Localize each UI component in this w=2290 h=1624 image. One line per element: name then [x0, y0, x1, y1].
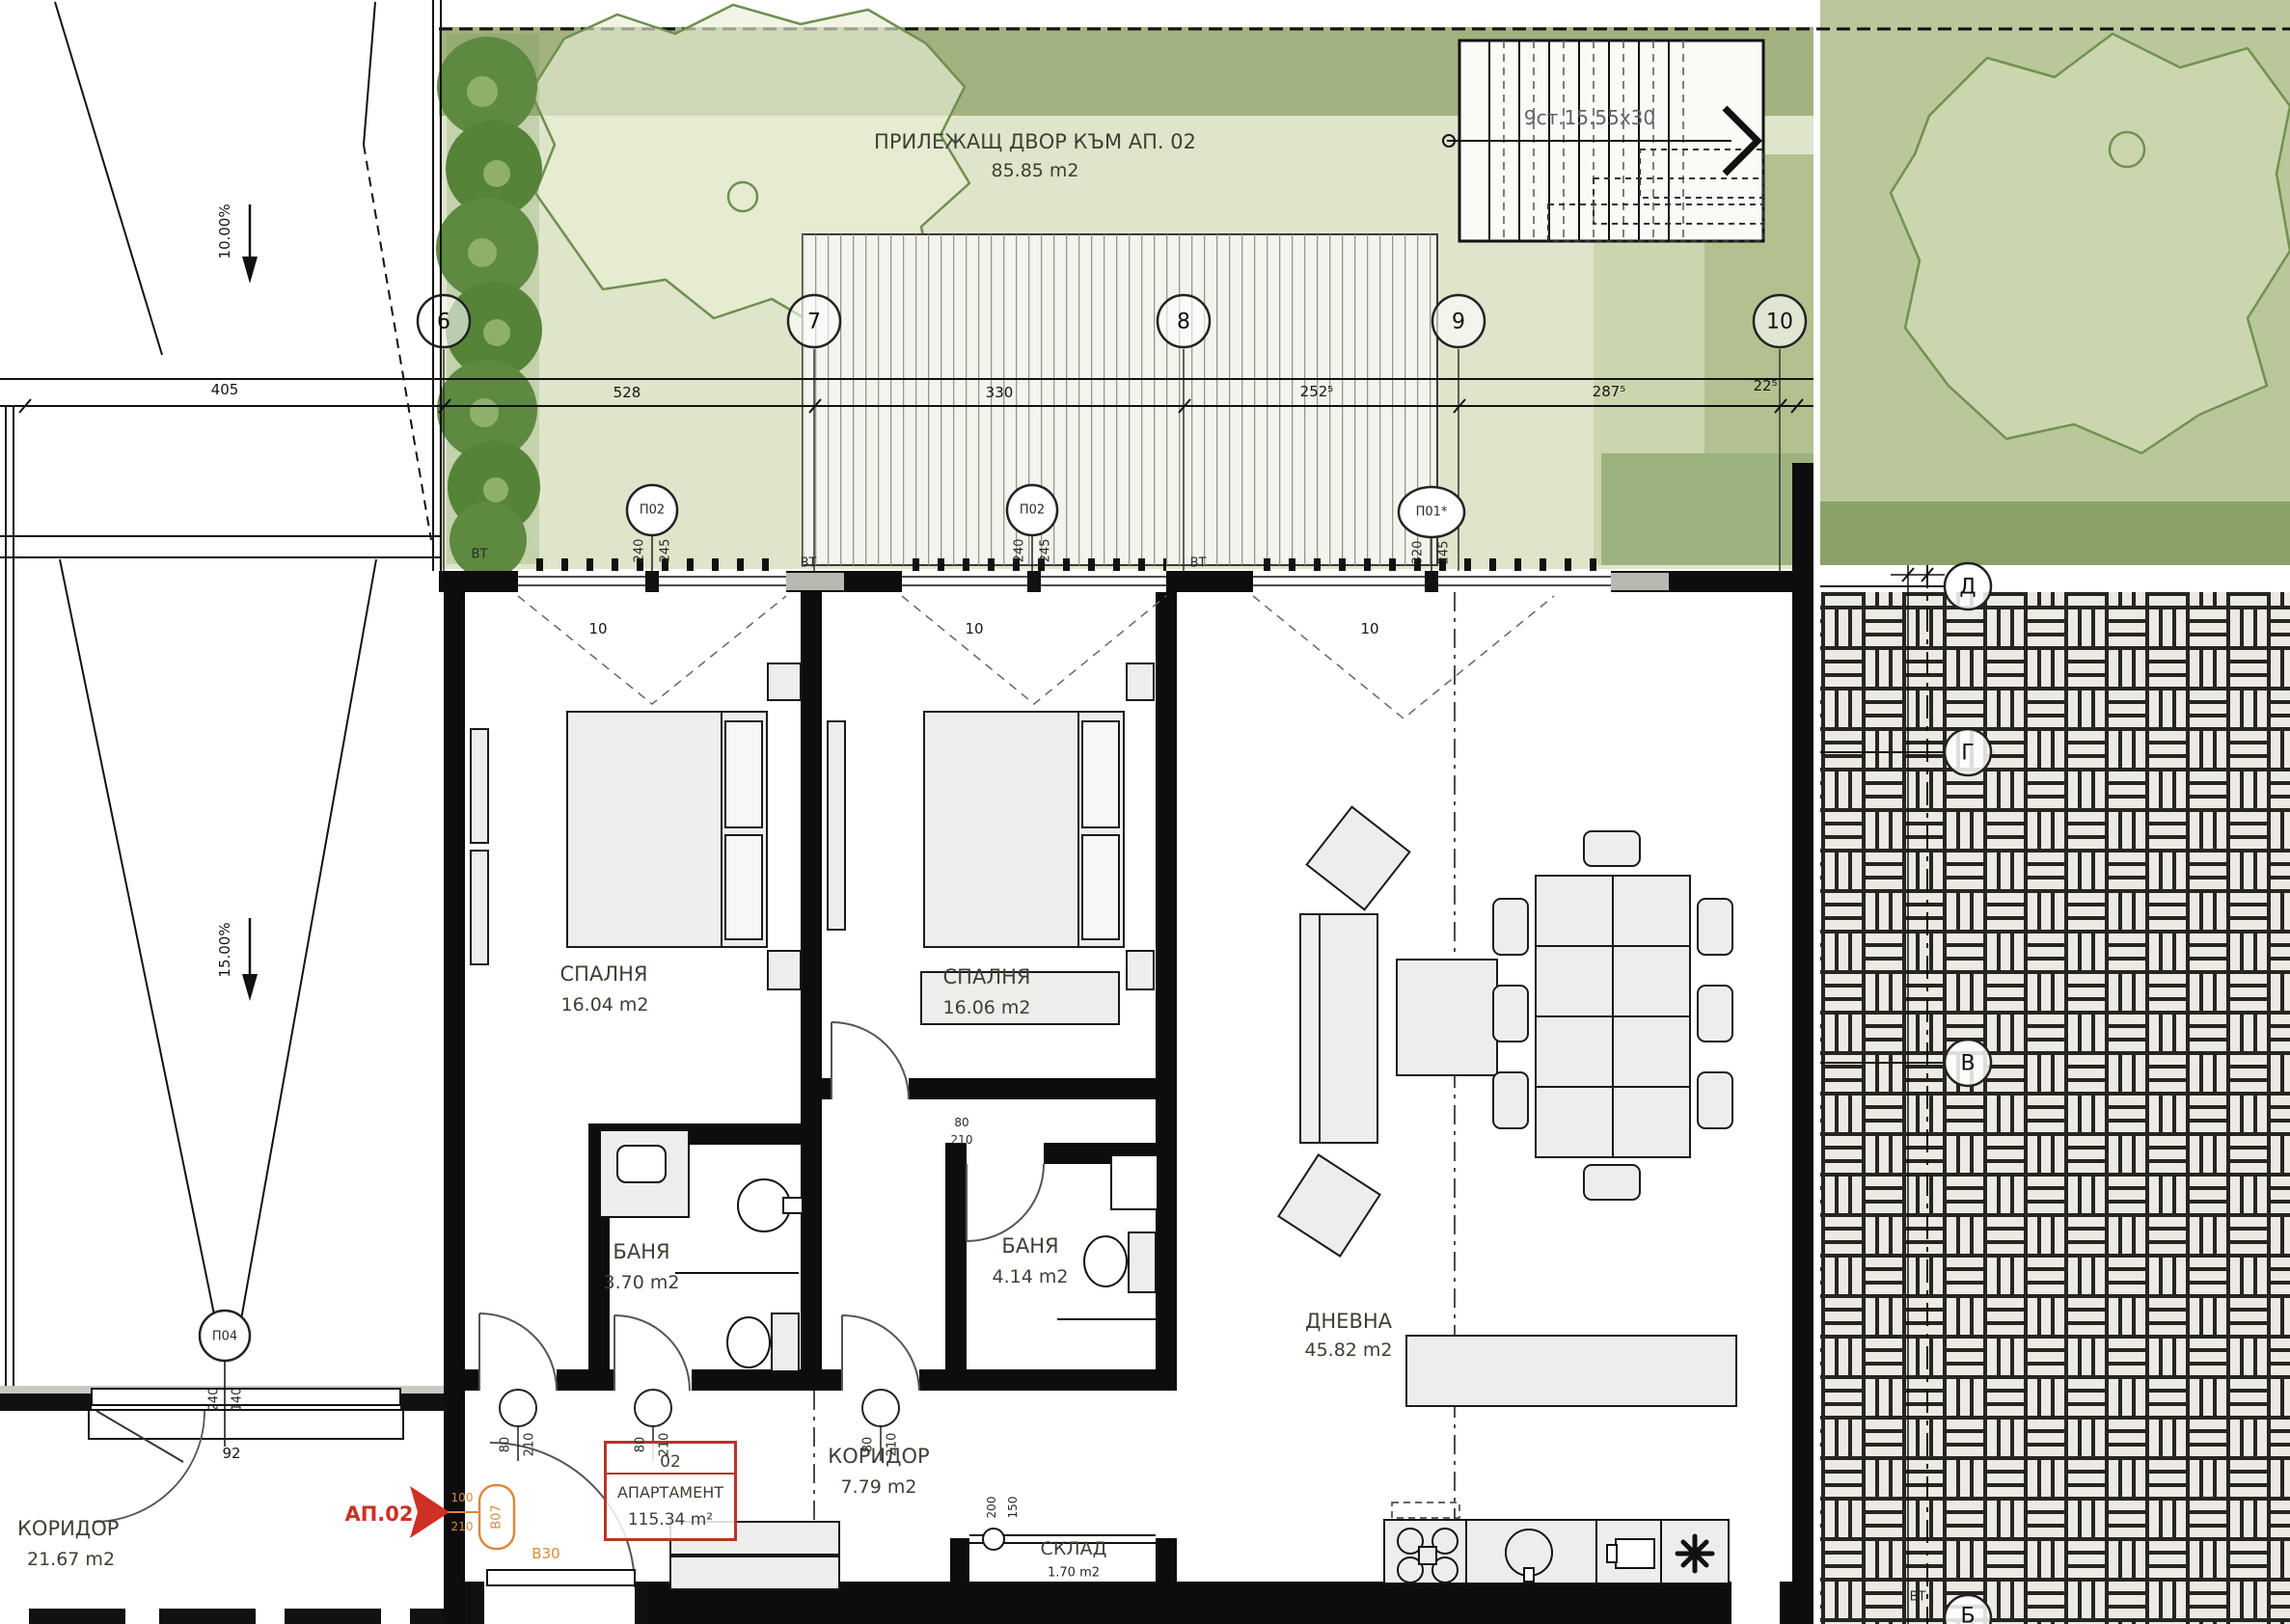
window-p01-w: 320 [1411, 541, 1426, 565]
floor-plan: ПРИЛЕЖАЩ ДВОР КЪМ АП. 02 85.85 m2 9ст.15… [0, 0, 2290, 1624]
grid-bubble-v: В [1960, 1052, 1975, 1076]
dim-225: 22⁵ [1753, 377, 1777, 394]
vent-tag-2: ВТ [801, 556, 817, 571]
window-swing-dashed [518, 596, 1554, 718]
door1-dim-h: 210 [523, 1433, 537, 1457]
window-tag-p02-1: П02 [640, 503, 665, 518]
terrace-deck [803, 234, 1437, 565]
window-p04-h: 140 [231, 1388, 245, 1412]
grid-bubble-10: 10 [1766, 311, 1793, 335]
grid-bubble-6: 6 [437, 311, 450, 335]
bottom-left-walls [29, 1609, 444, 1624]
room-bedroom1-area: 16.04 m2 [560, 994, 648, 1015]
window-p04-w: 240 [207, 1388, 222, 1412]
exterior-stairs [1443, 41, 1763, 241]
paved-terrace [1820, 563, 2290, 1624]
entrance-dim-h: 210 [451, 1520, 474, 1533]
entrance-dim-w: 100 [451, 1491, 474, 1504]
dim-528: 528 [613, 384, 641, 401]
dim-330: 330 [986, 384, 1014, 401]
storage-dim-h: 150 [1006, 1497, 1020, 1519]
dim-405: 405 [211, 381, 239, 398]
window-tag-p02-2: П02 [1020, 503, 1045, 518]
room-hall-area: 7.79 m2 [841, 1476, 917, 1498]
window-p02-2-w: 240 [1013, 539, 1027, 563]
slope-10: 10.00% [216, 203, 233, 258]
grid-bubble-9: 9 [1452, 311, 1465, 335]
room-corridor-name: КОРИДОР [17, 1517, 119, 1540]
room-storage-area: 1.70 m2 [1048, 1566, 1100, 1581]
slope-arrows [242, 204, 258, 1001]
room-bedroom2-area: 16.06 m2 [942, 997, 1030, 1018]
win-dim-10a: 10 [588, 620, 607, 637]
win-dim-10b: 10 [965, 620, 983, 637]
dim-2525: 252⁵ [1300, 383, 1334, 400]
room-storage-name: СКЛАД [1041, 1538, 1107, 1559]
room-corridor-area: 21.67 m2 [27, 1549, 115, 1570]
apartment-label: АПАРТАМЕНТ [607, 1483, 734, 1502]
room-bath2-area: 4.14 m2 [993, 1266, 1069, 1287]
door3-dim-h: 210 [886, 1433, 900, 1457]
bath2-door-dim-w: 80 [954, 1116, 968, 1129]
room-bath2-name: БАНЯ [1001, 1234, 1058, 1258]
room-bedroom2-name: СПАЛНЯ [943, 965, 1031, 988]
window-tag-p04: П04 [212, 1330, 237, 1344]
window-p02-1-w: 240 [633, 539, 647, 563]
vent-tag-3: ВТ [1190, 556, 1207, 571]
bathroom-fixtures [600, 1130, 1158, 1371]
window-tag-p01: П01* [1416, 505, 1448, 520]
apartment-area: 115.34 m² [607, 1510, 734, 1529]
bath2-door-dim-h: 210 [951, 1133, 973, 1147]
grid-bubble-g: Г [1961, 742, 1974, 766]
room-living-area: 45.82 m2 [1304, 1340, 1392, 1361]
grid-bubble-b: Б [1960, 1605, 1975, 1624]
door3-dim-w: 80 [861, 1437, 876, 1453]
plan-linework [0, 0, 2290, 1624]
door2-dim-h: 210 [658, 1433, 672, 1457]
yard-label: ПРИЛЕЖАЩ ДВОР КЪМ АП. 02 [874, 130, 1196, 153]
window-p01-h: 245 [1437, 541, 1452, 565]
grid-bubble-d: Д [1959, 576, 1976, 600]
window-p02-2-h: 245 [1039, 539, 1053, 563]
stairs-note: 9ст.15.55х30 [1524, 106, 1655, 129]
door2-dim-w: 80 [634, 1437, 648, 1453]
entrance-fire-tag: В30 [532, 1545, 559, 1562]
dim-2875: 287⁵ [1593, 383, 1626, 400]
kitchen-counter [1384, 1502, 1729, 1583]
vent-tag-1: ВТ [472, 548, 488, 562]
entrance-door-tag: В07 [490, 1504, 504, 1529]
storage-dim-w: 200 [985, 1497, 998, 1519]
vent-tag-4: ВТ [1910, 1590, 1926, 1605]
room-bath1-name: БАНЯ [613, 1240, 669, 1263]
room-bath1-area: 3.70 m2 [604, 1272, 680, 1293]
entrance-ap-label: АП.02 [344, 1502, 413, 1526]
room-hall-name: КОРИДОР [828, 1445, 929, 1468]
yard-area: 85.85 m2 [991, 160, 1078, 181]
door1-dim-w: 80 [499, 1437, 513, 1453]
room-bedroom1-name: СПАЛНЯ [560, 962, 648, 986]
window-p02-1-h: 245 [659, 539, 673, 563]
grid-bubble-8: 8 [1177, 311, 1190, 335]
dim-92: 92 [222, 1445, 240, 1462]
room-living-name: ДНЕВНА [1305, 1310, 1392, 1333]
slope-15: 15.00% [216, 922, 233, 977]
grid-bubble-7: 7 [807, 311, 821, 335]
win-dim-10c: 10 [1360, 620, 1378, 637]
